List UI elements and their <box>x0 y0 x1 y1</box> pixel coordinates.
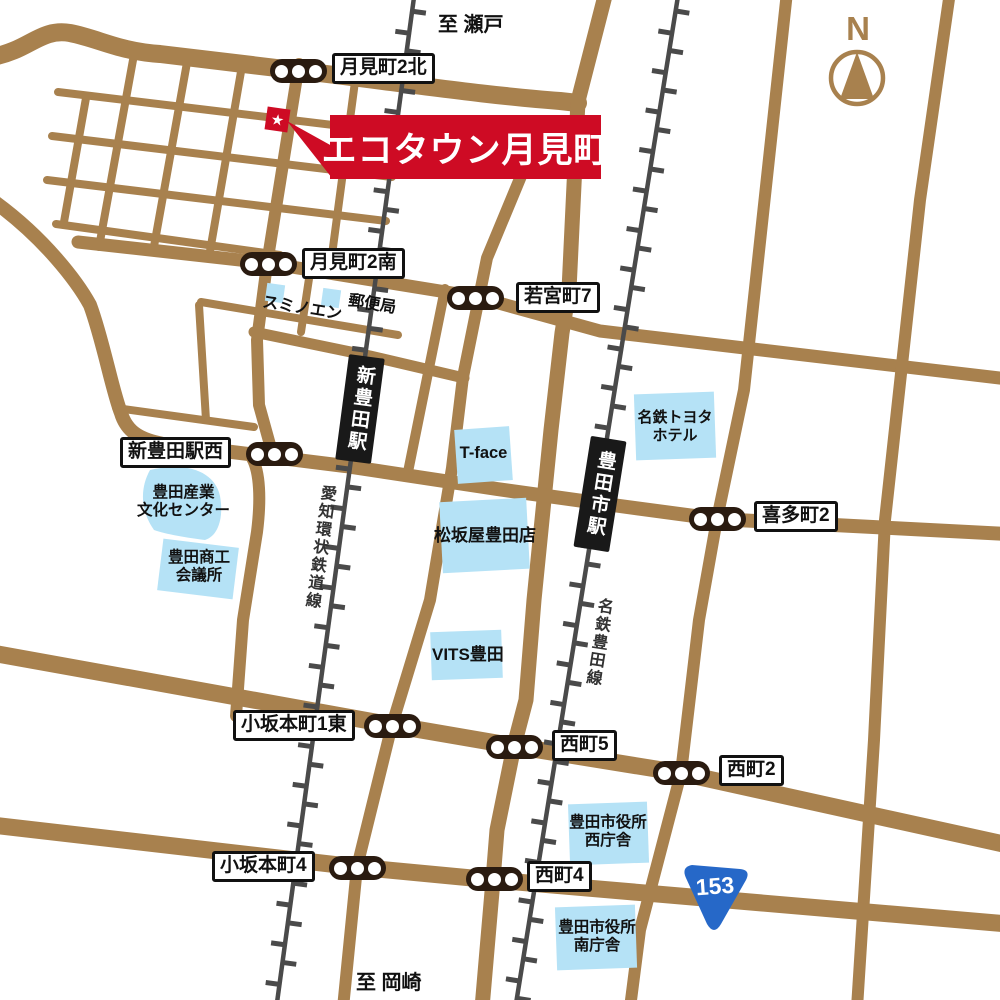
traffic-signal-icon <box>240 252 297 276</box>
traffic-signal-icon <box>329 856 386 880</box>
landmark-label-city-hall-west: 豊田市役所 西庁舎 <box>563 814 653 851</box>
landmark-label-matsuzakaya: 松坂屋豊田店 <box>434 526 536 546</box>
map-canvas: 新豊田駅 豊田市駅 愛知環状鉄道線 名鉄豊田線 至 瀬戸 至 岡崎 N 153 … <box>0 0 1000 1000</box>
signal-label-kosakahonmachi1-higashi: 小坂本町1東 <box>233 710 355 741</box>
landmark-label-toyota-shoko-kaigisho: 豊田商工 会議所 <box>160 549 238 586</box>
signal-label-kitamachi2: 喜多町2 <box>754 501 838 532</box>
compass-icon <box>831 52 883 104</box>
signal-label-tsukimicho2-kita: 月見町2北 <box>332 53 435 84</box>
road <box>199 305 206 420</box>
direction-label-north: 至 瀬戸 <box>438 8 504 37</box>
signal-label-kosakahonmachi4: 小坂本町4 <box>212 851 315 882</box>
compass-north-label: N <box>841 10 875 48</box>
road <box>116 408 254 427</box>
signal-label-shintoyotaeki-nishi: 新豊田駅西 <box>120 437 231 468</box>
destination-banner: エコタウン月見町 <box>330 115 601 179</box>
road <box>408 289 445 472</box>
road <box>857 0 950 1000</box>
landmark-label-city-hall-south: 豊田市役所 南庁舎 <box>551 919 643 956</box>
landmark-label-vits-toyota: VITS豊田 <box>432 645 502 665</box>
road <box>99 60 133 247</box>
traffic-signal-icon <box>270 59 327 83</box>
road <box>64 98 86 222</box>
landmark-label-toyota-sangyo-bunka-center: 豊田産業 文化センター <box>136 484 231 521</box>
landmark-label-t-face: T-face <box>456 444 511 463</box>
direction-label-south: 至 岡崎 <box>356 966 422 995</box>
road <box>236 458 259 716</box>
route-153-number: 153 <box>683 871 747 902</box>
landmark-label-meitetsu-toyota-hotel: 名鉄トヨタ ホテル <box>633 409 717 444</box>
traffic-signal-icon <box>364 714 421 738</box>
traffic-signal-icon <box>689 507 746 531</box>
traffic-signal-icon <box>653 761 710 785</box>
traffic-signal-icon <box>486 735 543 759</box>
signal-label-nishimachi2: 西町2 <box>719 755 784 786</box>
signal-label-wakamiyacho7: 若宮町7 <box>516 282 600 313</box>
signal-label-nishimachi4: 西町4 <box>527 861 592 892</box>
traffic-signal-icon <box>447 286 504 310</box>
traffic-signal-icon <box>246 442 303 466</box>
signal-label-tsukimicho2-minami: 月見町2南 <box>302 248 405 279</box>
destination-star-icon: ★ <box>265 107 291 133</box>
traffic-signal-icon <box>466 867 523 891</box>
signal-label-nishimachi5: 西町5 <box>552 730 617 761</box>
